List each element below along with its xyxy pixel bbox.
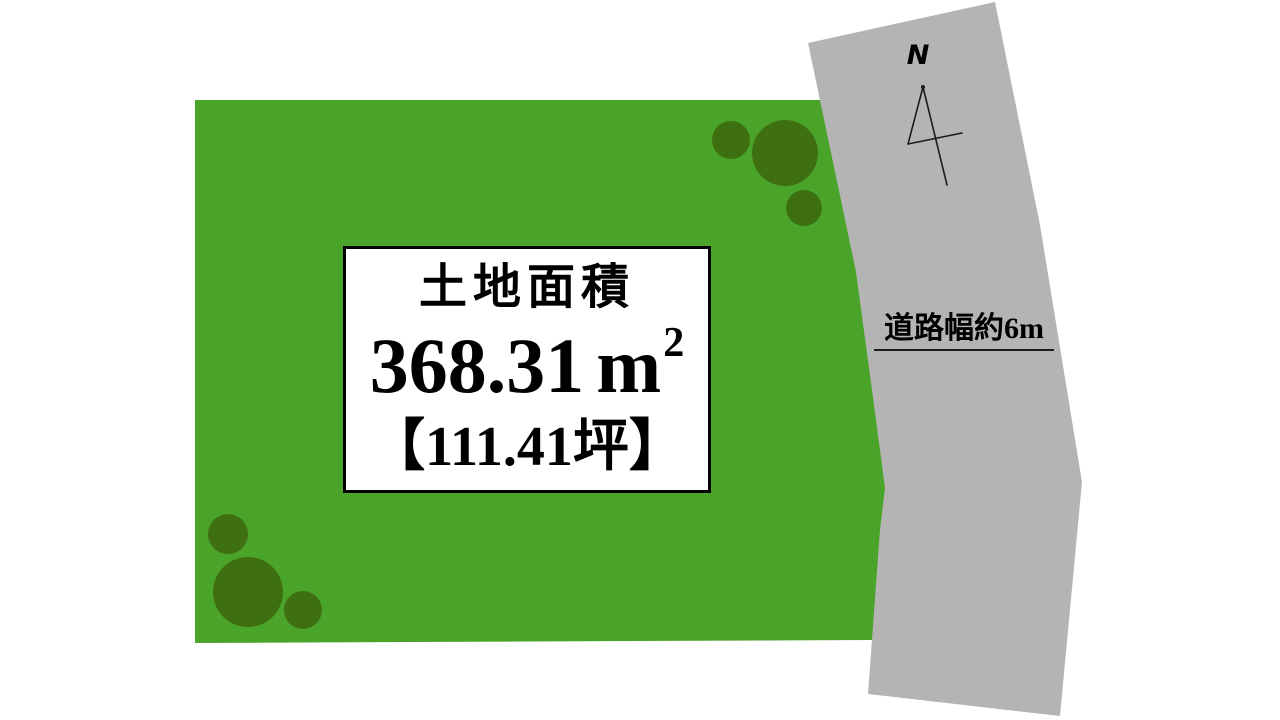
land-area-tsubo: 【111.41坪】 xyxy=(369,419,685,475)
tree-icon xyxy=(752,120,818,186)
tree-icon xyxy=(213,557,283,627)
tree-icon xyxy=(786,190,822,226)
tree-icon xyxy=(208,514,248,554)
land-area-square-meters: 368.31 m 2 xyxy=(370,327,684,405)
land-area-label-box: 土地面積 368.31 m 2 【111.41坪】 xyxy=(343,246,711,493)
road-width-label: 道路幅約6m xyxy=(874,312,1054,351)
land-area-unit: m xyxy=(596,327,661,405)
tree-icon xyxy=(712,121,750,159)
land-site-plan: 土地面積 368.31 m 2 【111.41坪】 道路幅約6m N xyxy=(0,0,1280,720)
tree-icon xyxy=(284,591,322,629)
land-area-title: 土地面積 xyxy=(419,264,635,312)
land-area-value: 368.31 xyxy=(370,327,585,405)
north-label: N xyxy=(894,42,942,69)
land-area-exponent: 2 xyxy=(663,322,684,364)
